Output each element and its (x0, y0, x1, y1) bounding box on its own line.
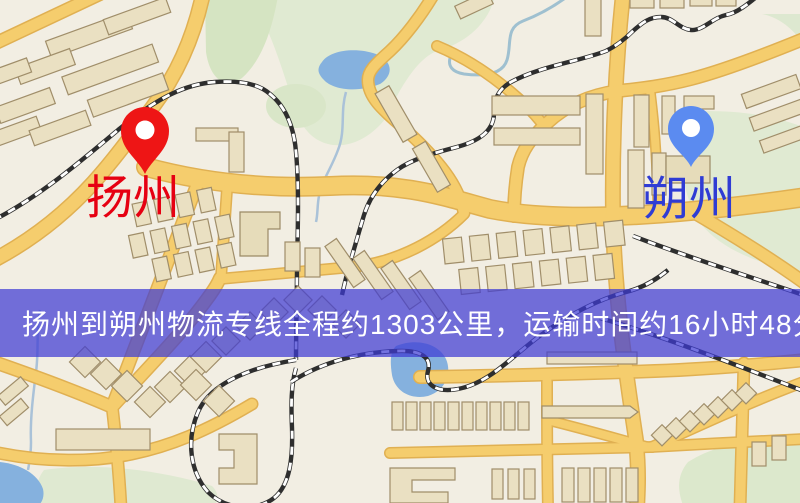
route-info-text: 扬州到朔州物流专线全程约1303公里，运输时间约16小时48分钟. (22, 303, 800, 343)
origin-pin-shape (121, 107, 169, 174)
origin-pin-hole (136, 121, 155, 140)
origin-pin-icon (117, 104, 173, 180)
destination-city-label: 朔州 (642, 177, 736, 224)
map-canvas (0, 0, 800, 503)
origin-city-label: 扬州 (86, 176, 180, 223)
destination-pin-hole (682, 119, 700, 137)
route-info-banner: 扬州到朔州物流专线全程约1303公里，运输时间约16小时48分钟. (0, 289, 800, 357)
destination-pin-icon (666, 104, 716, 170)
logistics-map-image: 扬州 朔州 扬州到朔州物流专线全程约1303公里，运输时间约16小时48分钟. (0, 0, 800, 503)
